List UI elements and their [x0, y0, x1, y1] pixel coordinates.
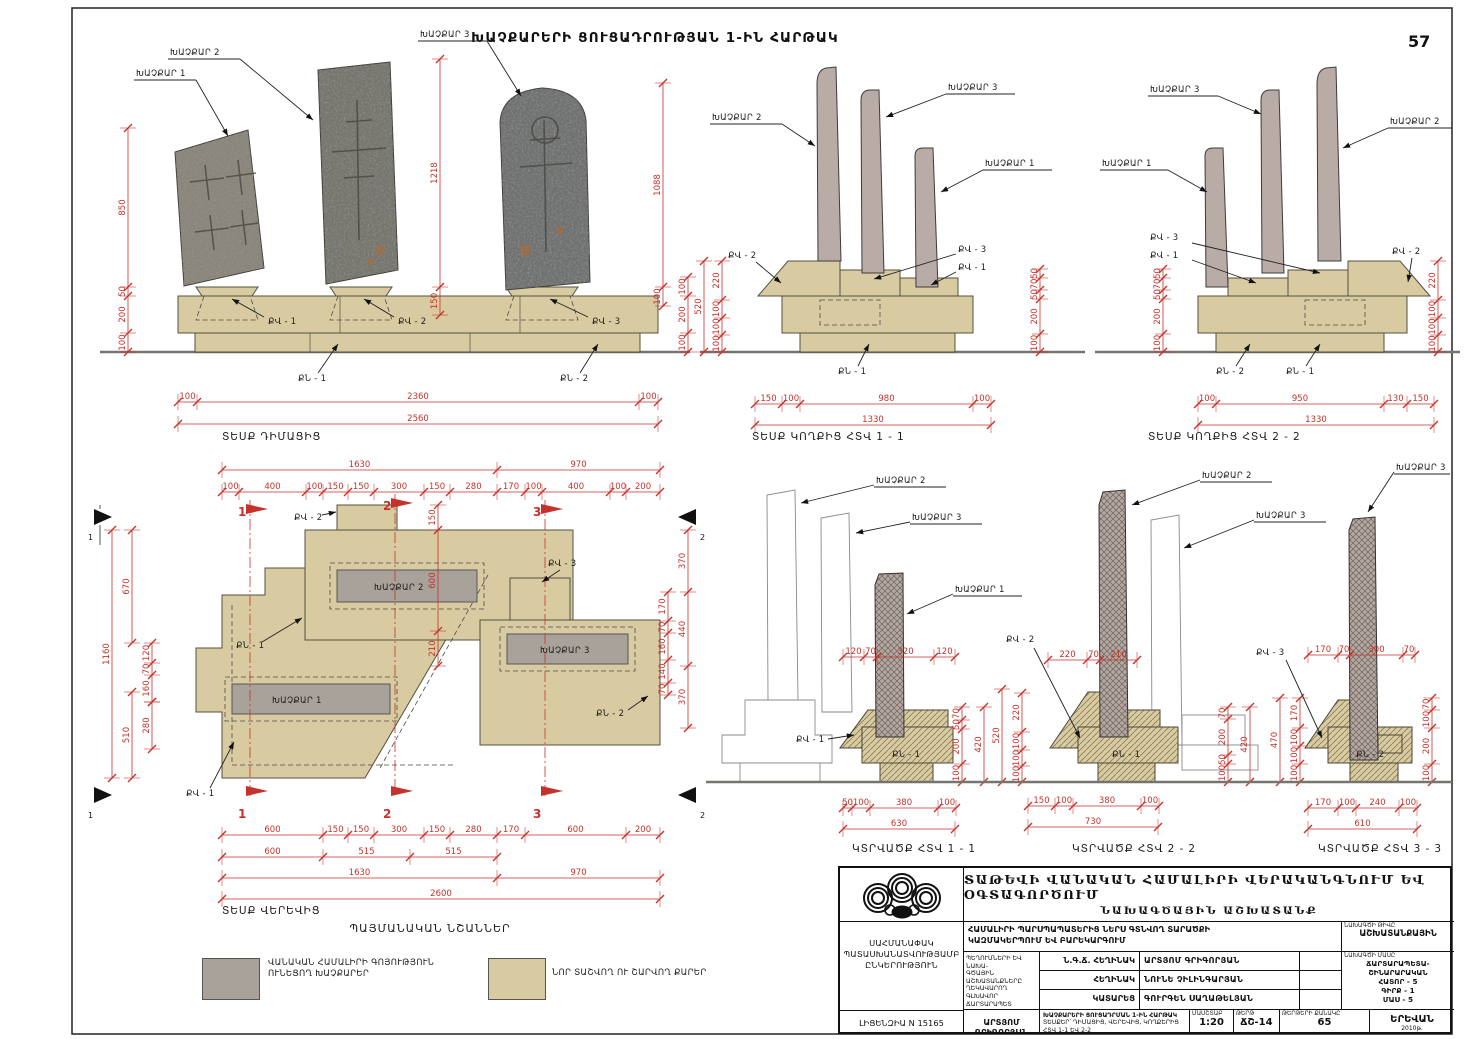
svg-text:950: 950	[1292, 394, 1308, 404]
svg-text:730: 730	[1085, 817, 1101, 827]
dim-chain: 220100100100	[1428, 257, 1446, 356]
svg-text:100: 100	[1428, 335, 1438, 351]
svg-text:100: 100	[1422, 711, 1432, 727]
svg-text:120: 120	[845, 647, 861, 657]
svg-text:1630: 1630	[349, 868, 371, 878]
svg-text:100: 100	[1290, 765, 1300, 781]
svg-text:515: 515	[358, 847, 374, 857]
svg-text:2: 2	[700, 811, 705, 820]
svg-text:170: 170	[658, 598, 668, 614]
legend-existing-label: ՎԱՆԱԿԱՆ ՀԱՄԱԼԻՐԻ ԳՈՅՈՒԹՅՈՒՆ ՈՒՆԵՑՈՂ ԽԱՉՔ…	[268, 958, 478, 980]
svg-text:600: 600	[264, 825, 280, 835]
svg-text:150: 150	[1033, 796, 1049, 806]
plan-view-caption: ՏԵՍՔ ՎԵՐԵՎԻՑ	[222, 905, 320, 917]
svg-text:200: 200	[1153, 308, 1163, 324]
part-label-qv3: ՔՎ - 3	[958, 245, 987, 255]
svg-text:70: 70	[658, 684, 668, 695]
sheet-count-value: 65	[1280, 1017, 1369, 1028]
svg-text:100: 100	[678, 278, 688, 294]
scale-cell: ՄԱՍՇՏԱԲ 1:20	[1190, 1010, 1234, 1034]
role-1-signature	[1300, 952, 1342, 971]
part-label-qv2: ՔՎ - 2	[398, 317, 427, 327]
svg-text:100: 100	[1012, 733, 1022, 749]
svg-text:380: 380	[1099, 796, 1115, 806]
khachkar-3-label: ԽԱՉՔԱՐ 3	[1396, 463, 1446, 473]
author-signature-cell: ԱՐՏՅՈՄ ԳՐԻԳՈՐՅԱՆ	[964, 1010, 1040, 1034]
section-2-caption: ԿՏՐՎԱԾՔ ՀՏՎ 2 - 2	[1072, 843, 1196, 855]
role-1: Ն.Գ.Ճ. ՀԵՂԻՆԱԿ	[1040, 952, 1140, 971]
svg-text:600: 600	[264, 847, 280, 857]
svg-text:670: 670	[122, 578, 132, 594]
dim-chain: 150100380100	[1024, 796, 1163, 814]
svg-text:400: 400	[264, 482, 280, 492]
svg-text:220: 220	[1012, 704, 1022, 720]
svg-text:150: 150	[353, 825, 369, 835]
dim-chain: 85050200100	[118, 124, 136, 356]
part-label-qv1: ՔՎ - 1	[186, 789, 215, 799]
svg-text:170: 170	[1315, 645, 1331, 655]
sheet-count-cell: ԹԵՐԹԵՐԻ ՔԱՆԱԿԸ 65	[1280, 1010, 1370, 1034]
sheet-cell: ԹԵՐԹ ՃՇ-14	[1234, 1010, 1280, 1034]
dim-chain: 630	[839, 819, 959, 837]
svg-text:100: 100	[712, 318, 722, 334]
role-2-name: ՆՈՒՆԵ ՉԻԼԻՆԳԱՐՅԱՆ	[1140, 971, 1300, 990]
chief-architect-cell: ՊԵՂՈՒՄՆԵՐԻ ԵՎ ՆԱԽԱ- ԳԾԱՅԻՆ ԱՇԽԱՏԱՆՔՆԵՐԸ …	[964, 952, 1040, 1010]
khachkar-2-label: ԽԱՉՔԱՐ 2	[170, 48, 220, 58]
dim-chain: 507050200100	[1030, 265, 1048, 356]
khachkar-2-label: ԽԱՉՔԱՐ 2	[1202, 471, 1252, 481]
side-view-1-1: 150100980100 1330 220100100100 520 50705…	[694, 67, 1085, 443]
license-cell: ԼԻՑԵՆԶԻԱ N 15165	[840, 1010, 964, 1034]
front-view: 1002360100 2560 85050200100 1218150 1088…	[100, 30, 696, 443]
svg-text:200: 200	[118, 306, 128, 322]
khachkar-3-slab	[1261, 90, 1284, 273]
svg-text:150: 150	[429, 482, 445, 492]
svg-text:3: 3	[533, 505, 541, 519]
svg-text:380: 380	[896, 798, 912, 808]
section-1-caption: ԿՏՐՎԱԾՔ ՀՏՎ 1 - 1	[852, 843, 976, 855]
dim-chain: 220100100100	[712, 257, 730, 356]
svg-text:150: 150	[327, 825, 343, 835]
svg-text:70: 70	[1030, 279, 1040, 290]
khachkar-1-photo	[175, 130, 264, 286]
svg-text:100: 100	[783, 394, 799, 404]
svg-text:100: 100	[1428, 301, 1438, 317]
company-line1: ՍԱՀՄԱՆԱՓԱԿ	[840, 938, 963, 949]
section-1-1: 12070320120 7050200100 420 50100380100 6…	[722, 476, 1022, 855]
svg-text:200: 200	[635, 825, 651, 835]
svg-text:50: 50	[1153, 268, 1163, 279]
page-title: ԽԱՉՔԱՐԵՐԻ ՑՈՒՑԱԴՐՈՒԹՅԱՆ 1-ԻՆ ՀԱՐԹԱԿ	[471, 30, 839, 46]
year-label: 2010թ.	[1370, 1025, 1454, 1032]
svg-text:1330: 1330	[1305, 415, 1327, 425]
dim-chain: 730	[1024, 817, 1162, 835]
svg-text:200: 200	[635, 482, 651, 492]
svg-text:520: 520	[694, 298, 704, 314]
drawing-desc-line2: ՏԵՍՔԵՐ՝ ԴԻՄԱՑԻՑ, ՎԵՐԵՎԻՑ, ԿՈՂՔԵՐԻՑ ՀՏՎ 1…	[1043, 1019, 1186, 1034]
dim-chain: 1002360100	[174, 392, 662, 410]
part-label-qn1: ՔՆ - 1	[298, 374, 326, 384]
khachkar-2-outline	[767, 490, 798, 700]
svg-text:70: 70	[1088, 650, 1099, 660]
svg-text:610: 610	[1354, 819, 1370, 829]
svg-text:520: 520	[992, 727, 1002, 743]
svg-text:200: 200	[1030, 308, 1040, 324]
svg-text:600: 600	[428, 572, 438, 588]
city-cell: ԵՐԵՎԱՆ 2010թ.	[1370, 1010, 1454, 1034]
svg-text:100: 100	[1339, 798, 1355, 808]
svg-text:100: 100	[1428, 318, 1438, 334]
dim-chain: 100400100150150300150280170100400100200	[218, 482, 664, 500]
dim-chain: 1218150	[430, 55, 448, 319]
part-label-qn1: ՔՆ - 1	[892, 750, 920, 760]
project-number-value: ԱՇԽԱՏԱՆՔԱՅԻՆ	[1342, 929, 1454, 939]
svg-text:100: 100	[974, 394, 990, 404]
plinth-2	[330, 287, 392, 296]
khachkar-2-label: ԽԱՉՔԱՐ 2	[876, 476, 926, 486]
dim-chain: 470	[1270, 694, 1288, 786]
part-label-qv2: ՔՎ - 2	[1006, 635, 1035, 645]
part-label-qn2: ՔՆ - 2	[560, 374, 588, 384]
company-logo	[840, 868, 964, 922]
svg-text:170: 170	[1315, 798, 1331, 808]
dim-chain: 600515515	[218, 847, 501, 865]
section-title-cell: ՀԱՄԱԼԻՐԻ ՊԱՐՍՊԱՊԱՏԵՐԻՑ ՆԵՐՍ ԳՏՆՎՈՂ ՏԱՐԱԾ…	[964, 922, 1342, 952]
svg-text:150: 150	[430, 293, 440, 309]
company-line3: ԸՆԿԵՐՈՒԹՅՈՒՆ	[840, 960, 963, 971]
svg-text:280: 280	[142, 717, 152, 733]
svg-text:100: 100	[1012, 750, 1022, 766]
svg-text:1218: 1218	[430, 162, 440, 184]
svg-text:100: 100	[1218, 765, 1228, 781]
scale-label: ՄԱՍՇՏԱԲ	[1190, 1010, 1233, 1017]
svg-text:280: 280	[465, 825, 481, 835]
svg-text:70: 70	[1218, 708, 1228, 719]
chief-line3: ՂԵԿԱՎԱՐՈՂ ԳԼԽԱՎՈՐ	[966, 985, 1037, 1000]
project-number-label: ՆԱԽԱԳԾԻ ԹԻՎԸ	[1342, 922, 1454, 929]
svg-text:100: 100	[179, 392, 195, 402]
svg-text:1160: 1160	[102, 643, 112, 665]
dim-chain: 670	[122, 526, 140, 647]
svg-text:70: 70	[1422, 699, 1432, 710]
svg-text:150: 150	[428, 509, 438, 525]
khachkar-3-outline	[821, 513, 852, 712]
svg-text:300: 300	[1368, 645, 1384, 655]
wedge-qv2	[1348, 261, 1430, 296]
svg-text:1088: 1088	[653, 174, 663, 196]
khachkar-1-label: ԽԱՉՔԱՐ 1	[985, 159, 1035, 169]
dim-chain: 600150150300150280170600200	[218, 825, 664, 843]
svg-text:150: 150	[429, 825, 445, 835]
dim-chain: 1088100	[653, 79, 671, 310]
svg-text:100: 100	[1290, 729, 1300, 745]
dim-chain: 70100200100	[1422, 694, 1440, 786]
svg-text:320: 320	[897, 647, 913, 657]
role-1-name: ԱՐՏՅՈՄ ԳՐԻԳՈՐՅԱՆ	[1140, 952, 1300, 971]
svg-text:50: 50	[1030, 268, 1040, 279]
svg-text:100: 100	[1153, 335, 1163, 351]
svg-text:300: 300	[391, 825, 407, 835]
part-line1: ՃԱՐՏԱՐԱՊԵՏԱ-	[1342, 959, 1454, 968]
part-label-qv1: ՔՎ - 1	[796, 735, 825, 745]
svg-text:630: 630	[891, 819, 907, 829]
svg-text:220: 220	[1059, 650, 1075, 660]
svg-text:370: 370	[678, 553, 688, 569]
svg-text:150: 150	[760, 394, 776, 404]
svg-text:70: 70	[142, 664, 152, 675]
part-label-qn1: ՔՆ - 1	[1112, 750, 1140, 760]
khachkar-3-slab	[861, 90, 884, 273]
part-label-qv3: ՔՎ - 3	[592, 317, 621, 327]
dim-chain: 170100240100	[1304, 798, 1421, 816]
part-label-qn1: ՔՆ - 1	[1286, 367, 1314, 377]
dim-chain: 507050200100	[1153, 265, 1171, 356]
wedge-qv2	[758, 261, 840, 296]
dim-chain: 520	[694, 257, 712, 356]
base-lower-tier	[195, 333, 640, 352]
dim-chain: 520	[992, 685, 1010, 786]
khachkar-2-photo	[318, 62, 398, 284]
part-label-qn2: ՔՆ - 2	[1356, 750, 1384, 760]
svg-text:100: 100	[712, 301, 722, 317]
side-view-2-2: 100950130150 1330 507050200100 220100100…	[1095, 67, 1460, 443]
svg-text:850: 850	[118, 199, 128, 215]
svg-text:160: 160	[658, 638, 668, 654]
part-label-qv3: ՔՎ - 3	[548, 559, 577, 569]
svg-text:220: 220	[712, 272, 722, 288]
svg-text:515: 515	[445, 847, 461, 857]
part-label-qv3: ՔՎ - 3	[1256, 648, 1285, 658]
svg-text:400: 400	[568, 482, 584, 492]
svg-text:50: 50	[952, 719, 962, 730]
svg-text:2560: 2560	[407, 414, 429, 424]
svg-text:70: 70	[1404, 645, 1415, 655]
svg-text:170: 170	[1290, 705, 1300, 721]
svg-text:100: 100	[1030, 335, 1040, 351]
svg-text:280: 280	[465, 482, 481, 492]
part-label-qn1: ՔՆ - 1	[236, 641, 264, 651]
svg-text:220: 220	[1428, 272, 1438, 288]
dim-chain: 2560	[174, 414, 662, 432]
svg-text:970: 970	[570, 868, 586, 878]
part-label-qv2: ՔՎ - 2	[294, 513, 323, 523]
svg-text:120: 120	[936, 647, 952, 657]
khachkar-3-label: ԽԱՉՔԱՐ 3	[1150, 85, 1200, 95]
part-label-qn1: ՔՆ - 1	[838, 367, 866, 377]
side-view-2-caption: ՏԵՍՔ ԿՈՂՔԻՑ ՀՏՎ 2 - 2	[1148, 431, 1301, 443]
svg-text:200: 200	[1422, 738, 1432, 754]
khachkar-2-label: ԽԱՉՔԱՐ 2	[1390, 117, 1440, 127]
part-line4: ԳԻՐՔ - 1	[1342, 986, 1454, 995]
svg-text:420: 420	[1240, 736, 1250, 752]
svg-text:170: 170	[503, 482, 519, 492]
svg-text:100: 100	[118, 334, 128, 350]
city-label: ԵՐԵՎԱՆ	[1370, 1010, 1454, 1025]
svg-text:240: 240	[1369, 798, 1385, 808]
section-3-caption: ԿՏՐՎԱԾՔ ՀՏՎ 3 - 3	[1318, 843, 1442, 855]
svg-text:100: 100	[1142, 796, 1158, 806]
khachkar-3-label: ԽԱՉՔԱՐ 3	[912, 513, 962, 523]
dim-chain: 610	[1304, 819, 1421, 837]
svg-text:510: 510	[122, 727, 132, 743]
section-2-2: 22070210 220100100100 520 7020050100 420…	[992, 471, 1326, 855]
svg-text:50: 50	[118, 286, 128, 297]
front-view-caption: ՏԵՍՔ ԴԻՄԱՑԻՑ	[222, 431, 321, 443]
svg-text:210: 210	[428, 640, 438, 656]
svg-text:140: 140	[658, 663, 668, 679]
legend-new-label: ՆՈՐ ՏԱՇՎՈՂ ՈՒ ՇԱՐՎՈՂ ՔԱՐԵՐ	[552, 968, 782, 979]
khachkar-2-plan-label: ԽԱՉՔԱՐ 2	[374, 583, 424, 593]
part-label-qv3: ՔՎ - 3	[1150, 233, 1179, 243]
svg-text:2: 2	[383, 499, 391, 513]
chief-line4: ՃԱՐՏԱՐԱՊԵՏ	[966, 1001, 1037, 1009]
dim-chain: 12070160	[142, 639, 160, 706]
svg-text:50: 50	[1153, 289, 1163, 300]
part-label-qv1: ՔՎ - 1	[268, 317, 297, 327]
svg-text:3: 3	[533, 807, 541, 821]
role-3: ԿԱՏԱՐԵՑ	[1040, 990, 1140, 1010]
chief-line1: ՊԵՂՈՒՄՆԵՐԻ ԵՎ ՆԱԽԱ-	[966, 955, 1037, 970]
dim-chain: 50100380100	[839, 798, 960, 816]
legend-swatch-new	[488, 958, 546, 1000]
svg-text:100: 100	[1422, 765, 1432, 781]
svg-text:470: 470	[1270, 732, 1280, 748]
svg-text:1: 1	[88, 533, 93, 542]
svg-text:370: 370	[678, 689, 688, 705]
svg-text:100: 100	[610, 482, 626, 492]
project-number-cell: ՆԱԽԱԳԾԻ ԹԻՎԸ ԱՇԽԱՏԱՆՔԱՅԻՆ	[1342, 922, 1454, 952]
legend-existing-line1: ՎԱՆԱԿԱՆ ՀԱՄԱԼԻՐԻ ԳՈՅՈՒԹՅՈՒՆ	[268, 958, 478, 969]
legend-existing-line2: ՈՒՆԵՑՈՂ ԽԱՉՔԱՐԵՐ	[268, 969, 478, 980]
svg-text:160: 160	[142, 680, 152, 696]
dim-chain: 100950130150	[1194, 394, 1438, 412]
svg-text:2: 2	[700, 533, 705, 542]
svg-text:70: 70	[865, 647, 876, 657]
dim-chain: 220100100100	[1012, 689, 1030, 786]
project-title-line2: ՆԱԽԱԳԾԱՅԻՆ ԱՇԽԱՏԱՆՔ	[1100, 905, 1317, 917]
khachkar-2-slab	[817, 67, 841, 261]
dim-chain: 280	[142, 698, 160, 753]
khachkar-2-slab	[1317, 67, 1341, 261]
svg-text:100: 100	[952, 765, 962, 781]
company-line2: ՊԱՏԱՍԽԱՆԱՏՎՈՒԹՅԱՄԲ	[840, 949, 963, 960]
svg-text:50: 50	[1030, 289, 1040, 300]
khachkar-3-section	[1349, 517, 1378, 760]
khachkar-1-label: ԽԱՉՔԱՐ 1	[955, 585, 1005, 595]
project-title-cell: ՏԱԹԵՎԻ ՎԱՆԱԿԱՆ ՀԱՄԱԼԻՐԻ ՎԵՐԱԿԱՆԳՆՈՒՄ ԵՎ …	[964, 868, 1454, 922]
base-upper-tier	[178, 296, 658, 333]
svg-text:440: 440	[678, 621, 688, 637]
svg-text:2600: 2600	[430, 889, 452, 899]
svg-text:420: 420	[974, 736, 984, 752]
svg-text:150: 150	[353, 482, 369, 492]
legend-swatch-existing	[202, 958, 260, 1000]
part-line3: ՀԱՏՈՐ - 5	[1342, 977, 1454, 986]
khachkar-3-label: ԽԱՉՔԱՐ 3	[948, 83, 998, 93]
chief-line2: ԳԾԱՅԻՆ ԱՇԽԱՏԱՆՔՆԵՐԸ	[966, 970, 1037, 985]
dim-chain: 150100980100	[751, 394, 995, 412]
tab-qv3	[510, 578, 570, 620]
dim-chain: 170100100100	[1290, 694, 1308, 786]
svg-text:200: 200	[678, 306, 688, 322]
part-line5: ՄԱՍ - 5	[1342, 995, 1454, 1004]
svg-text:100: 100	[678, 334, 688, 350]
dim-chain: 420	[974, 703, 992, 786]
logo-cell	[840, 868, 964, 922]
dim-chain: 1160	[102, 526, 120, 782]
side-view-1-caption: ՏԵՍՔ ԿՈՂՔԻՑ ՀՏՎ 1 - 1	[752, 431, 905, 443]
svg-text:2360: 2360	[407, 392, 429, 402]
role-3-name: ԳՈՒՐԳԵՆ ՍԱՂԱԹԵԼՅԱՆ	[1140, 990, 1300, 1010]
svg-text:70: 70	[658, 622, 668, 633]
svg-text:1: 1	[238, 505, 246, 519]
svg-text:150: 150	[327, 482, 343, 492]
plinth-1	[196, 287, 258, 296]
khachkar-3-photo	[500, 88, 590, 290]
svg-text:50: 50	[1218, 754, 1228, 765]
svg-text:120: 120	[142, 645, 152, 661]
role-3-signature	[1300, 990, 1342, 1010]
svg-text:100: 100	[939, 798, 955, 808]
khachkar-2-section	[1099, 490, 1128, 737]
part-label-qn2: ՔՆ - 2	[1216, 367, 1244, 377]
dim-chain: 1707016014070	[658, 588, 676, 699]
khachkar-1-label: ԽԱՉՔԱՐ 1	[1102, 159, 1152, 169]
khachkar-1-label: ԽԱՉՔԱՐ 1	[136, 69, 186, 79]
part-line2: ՇԻՆԱՐԱՐԱԿԱՆ	[1342, 968, 1454, 977]
svg-text:100: 100	[1290, 747, 1300, 763]
svg-text:100: 100	[640, 392, 656, 402]
khachkar-1-plan-label: ԽԱՉՔԱՐ 1	[272, 696, 322, 706]
svg-text:1: 1	[88, 811, 93, 820]
svg-text:100: 100	[222, 482, 238, 492]
dim-chain: 7050200100	[952, 703, 970, 786]
svg-text:100: 100	[306, 482, 322, 492]
svg-text:210: 210	[1110, 650, 1126, 660]
svg-text:1: 1	[238, 807, 246, 821]
sheet-label: ԹԵՐԹ	[1234, 1010, 1279, 1017]
scale-value: 1:20	[1190, 1017, 1233, 1028]
plan-view: 1 1 2 2 3 3 1 1 2 2 1630970 100400	[88, 460, 705, 917]
svg-text:100: 100	[1199, 394, 1215, 404]
part-label-qv2: ՔՎ - 2	[728, 251, 757, 261]
part-label-qv1: ՔՎ - 1	[1150, 251, 1179, 261]
svg-text:600: 600	[567, 825, 583, 835]
khachkar-3-label: ԽԱՉՔԱՐ 3	[1256, 511, 1306, 521]
svg-text:1330: 1330	[862, 415, 884, 425]
svg-text:970: 970	[570, 460, 586, 470]
company-cell: ՍԱՀՄԱՆԱՓԱԿ ՊԱՏԱՍԽԱՆԱՏՎՈՒԹՅԱՄԲ ԸՆԿԵՐՈՒԹՅՈ…	[840, 922, 964, 1010]
svg-text:100: 100	[1012, 766, 1022, 782]
dim-chain: 1630970	[218, 868, 664, 886]
khachkar-3-plan-label: ԽԱՉՔԱՐ 3	[540, 646, 590, 656]
khachkar-2-label: ԽԱՉՔԱՐ 2	[712, 113, 762, 123]
project-title-line1: ՏԱԹԵՎԻ ՎԱՆԱԿԱՆ ՀԱՄԱԼԻՐԻ ՎԵՐԱԿԱՆԳՆՈՒՄ ԵՎ …	[964, 872, 1454, 902]
svg-text:70: 70	[952, 708, 962, 719]
svg-text:170: 170	[503, 825, 519, 835]
svg-text:100: 100	[1056, 796, 1072, 806]
svg-text:50: 50	[842, 798, 853, 808]
role-2: ՀԵՂԻՆԱԿ	[1040, 971, 1140, 990]
khachkar-3-label: ԽԱՉՔԱՐ 3	[420, 30, 470, 40]
page-number: 57	[1408, 32, 1430, 51]
sheet-value: ՃՇ-14	[1234, 1017, 1279, 1028]
part-label-qv1: ՔՎ - 1	[958, 263, 987, 273]
svg-text:2: 2	[383, 807, 391, 821]
svg-text:70: 70	[1153, 279, 1163, 290]
svg-text:100: 100	[712, 335, 722, 351]
title-block: ՏԱԹԵՎԻ ՎԱՆԱԿԱՆ ՀԱՄԱԼԻՐԻ ՎԵՐԱԿԱՆԳՆՈՒՄ ԵՎ …	[838, 866, 1452, 1034]
